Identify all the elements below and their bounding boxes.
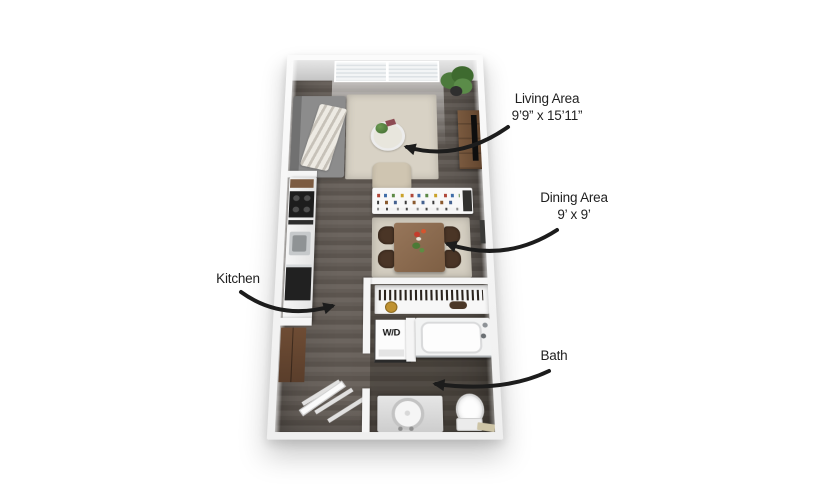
dining-area-title: Dining Area (514, 190, 634, 207)
shelf-unit (372, 188, 473, 214)
bath-label: Bath (504, 348, 604, 365)
dining-chair (378, 226, 394, 244)
shower-fixture (482, 323, 487, 328)
kitchen-sink (289, 232, 311, 256)
bath-closet-shelf (375, 285, 490, 314)
vase (416, 237, 421, 241)
shelf-items-row (377, 194, 460, 197)
shelf-end-panel (462, 190, 472, 211)
vanity-handle (409, 427, 413, 431)
bath-wall (363, 278, 371, 354)
dishwasher (285, 265, 312, 301)
vanity-handle (398, 427, 402, 431)
potted-plant (440, 66, 475, 97)
stove (289, 191, 315, 217)
cutting-board (290, 179, 314, 188)
vanity-sink (392, 398, 425, 430)
shelf-items-row (377, 208, 460, 211)
gold-plate (385, 301, 398, 313)
kitchen-title: Kitchen (188, 271, 288, 288)
wall-stub (288, 171, 317, 178)
bathtub-basin (421, 322, 483, 354)
window (334, 61, 440, 82)
wall-stub (280, 318, 312, 326)
washer-dryer-label: W/D (383, 328, 401, 338)
oven (288, 220, 313, 224)
plant-pot (450, 86, 462, 96)
dining-chair (444, 226, 461, 244)
dining-area-label: Dining Area 9’ x 9’ (514, 190, 634, 223)
bottle-row (379, 290, 484, 301)
floorplan-canvas: W/D Living Area 9’9 (0, 0, 825, 500)
kitchen-label: Kitchen (188, 271, 288, 288)
floor-plan: W/D (267, 55, 503, 440)
bath-title: Bath (504, 348, 604, 365)
bathtub (415, 318, 491, 358)
living-area-dims: 9’9” x 15’11” (486, 108, 608, 125)
shelf-items-row (377, 201, 460, 204)
bath-wall (363, 278, 487, 285)
living-area-title: Living Area (486, 91, 608, 108)
flower-red (421, 229, 426, 233)
flower-green (419, 248, 424, 253)
bath-wall (362, 388, 370, 432)
dining-area-dims: 9’ x 9’ (514, 207, 634, 224)
apartment-floor: W/D (275, 60, 495, 432)
dining-chair (445, 250, 462, 268)
entry-wardrobe (278, 328, 306, 383)
wall-picture (480, 220, 486, 243)
dining-chair (378, 250, 394, 268)
tub-faucet (481, 334, 486, 339)
towel-roll (449, 301, 467, 309)
living-area-label: Living Area 9’9” x 15’11” (486, 91, 608, 124)
